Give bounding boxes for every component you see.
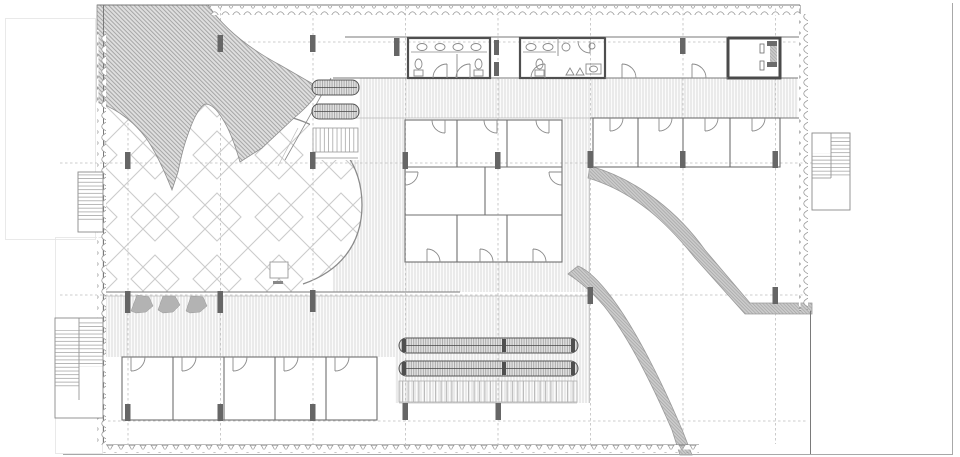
tree-icons bbox=[131, 295, 207, 313]
elevator-door-leaf bbox=[760, 44, 764, 53]
elevator-door-leaf bbox=[760, 61, 764, 70]
floor-plan-page bbox=[0, 0, 960, 457]
stair-west-upper bbox=[78, 172, 103, 232]
column-marker bbox=[773, 151, 779, 168]
floor-plan-drawing bbox=[0, 0, 960, 457]
column-marker bbox=[310, 404, 316, 421]
column-marker bbox=[680, 151, 686, 168]
stone-band-north bbox=[208, 6, 800, 15]
column-marker bbox=[125, 152, 131, 169]
stone-band-east bbox=[799, 14, 808, 310]
column-marker bbox=[125, 291, 131, 313]
elevator-core bbox=[728, 38, 780, 78]
column-marker bbox=[218, 35, 224, 52]
deck-center-block-south bbox=[405, 262, 562, 292]
deck-center-block-right bbox=[562, 118, 590, 292]
column-marker bbox=[496, 403, 502, 420]
column-marker bbox=[218, 291, 224, 313]
column-marker bbox=[310, 290, 316, 312]
column-marker bbox=[495, 152, 501, 169]
column-marker bbox=[773, 287, 779, 304]
column-marker bbox=[680, 38, 686, 54]
stair-east bbox=[812, 133, 850, 210]
column-marker bbox=[588, 287, 594, 304]
stone-band-south bbox=[103, 445, 699, 453]
dining-tables bbox=[399, 338, 578, 402]
column-marker bbox=[218, 404, 224, 421]
column-marker bbox=[403, 403, 409, 420]
deck-top-corridor bbox=[345, 78, 798, 118]
column-marker bbox=[403, 152, 409, 169]
column-marker bbox=[310, 35, 316, 52]
column-marker bbox=[394, 38, 400, 56]
column-marker bbox=[125, 404, 131, 421]
stair-west-lower bbox=[55, 318, 103, 418]
deck-balustrade bbox=[399, 381, 577, 402]
column-marker bbox=[588, 151, 594, 168]
column-marker bbox=[310, 152, 316, 169]
